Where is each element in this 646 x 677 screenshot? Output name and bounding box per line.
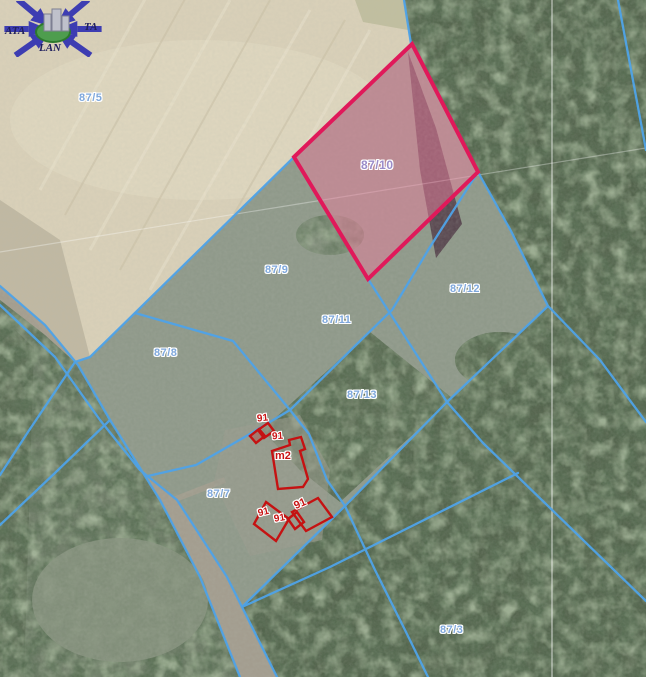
- building-label-91: 91: [256, 412, 268, 424]
- watermark-logo: ATA TA LAN: [2, 1, 104, 57]
- parcel-label-87-3: 87/3: [440, 624, 463, 636]
- logo-text-right: TA: [84, 21, 97, 33]
- parcel-label-87-7: 87/7: [207, 488, 230, 500]
- building-label-91: 91: [272, 431, 284, 443]
- building-label-91: 91: [273, 512, 286, 525]
- map-canvas[interactable]: 87/5 87/10 87/9 87/12 87/11 87/8 87/13 8…: [0, 0, 646, 677]
- building-label-m2: m2: [275, 450, 291, 462]
- parcel-label-87-11: 87/11: [322, 314, 351, 326]
- parcel-label-87-8: 87/8: [154, 347, 177, 359]
- parcel-label-87-9: 87/9: [265, 264, 288, 276]
- logo-text-bottom: LAN: [38, 42, 62, 54]
- logo-text-left: ATA: [4, 25, 25, 37]
- parcel-label-87-12: 87/12: [450, 283, 480, 295]
- parcel-label-87-13: 87/13: [347, 389, 377, 401]
- parcel-label-87-5: 87/5: [79, 92, 102, 104]
- parcel-label-87-10: 87/10: [361, 158, 394, 172]
